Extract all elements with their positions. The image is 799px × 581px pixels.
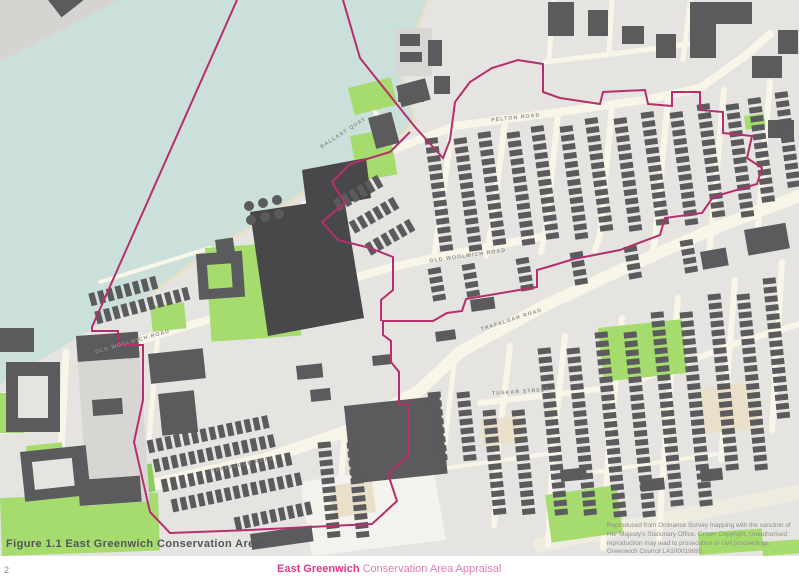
copyright-line: Her Majesty's Stationary Office. Crown C…	[607, 531, 795, 540]
courtyard-green	[207, 263, 233, 289]
building	[372, 354, 391, 366]
building	[296, 363, 323, 380]
gas-holder	[274, 209, 284, 219]
gas-holder	[246, 215, 256, 225]
gas-holder	[260, 212, 270, 222]
building	[714, 2, 752, 24]
courtyard	[18, 376, 48, 418]
page-number: 2	[4, 565, 9, 575]
building	[588, 10, 608, 36]
conservation-area-map: BALLAST QUAYPELTON ROADOLD WOOLWICH ROAD…	[0, 0, 799, 556]
courtyard	[32, 458, 75, 490]
building	[398, 88, 424, 102]
copyright-line: Reproduced from Ordnance Survey mapping …	[607, 522, 795, 531]
footer-title-bold: East Greenwich	[277, 563, 360, 575]
building	[428, 40, 442, 66]
yard	[700, 382, 761, 434]
building	[690, 2, 716, 58]
page-footer: 2 East Greenwich Conservation Area Appra…	[0, 556, 799, 581]
building	[434, 76, 450, 94]
footer-title-rest: Conservation Area Appraisal	[360, 563, 502, 575]
building	[656, 34, 676, 58]
building	[548, 2, 574, 36]
building	[400, 34, 420, 46]
building	[92, 398, 123, 416]
building	[0, 328, 34, 352]
document-page: BALLAST QUAYPELTON ROADOLD WOOLWICH ROAD…	[0, 0, 799, 581]
gas-holder	[258, 198, 268, 208]
building	[400, 52, 422, 62]
building	[752, 56, 782, 78]
figure-caption: Figure 1.1 East Greenwich Conservation A…	[6, 538, 261, 550]
footer-title: East Greenwich Conservation Area Apprais…	[277, 563, 501, 575]
building	[778, 30, 798, 54]
building	[148, 348, 206, 384]
green-space	[150, 302, 187, 331]
building	[310, 388, 331, 402]
building	[622, 26, 644, 44]
map-figure: BALLAST QUAYPELTON ROADOLD WOOLWICH ROAD…	[0, 0, 799, 556]
gas-holder	[244, 201, 254, 211]
building	[78, 476, 142, 506]
building	[158, 390, 198, 436]
copyright-note: Reproduced from Ordnance Survey mapping …	[607, 522, 795, 557]
road	[609, 0, 612, 54]
copyright-line: reproduction may lead to prosecution or …	[607, 540, 795, 549]
gas-holder	[272, 195, 282, 205]
